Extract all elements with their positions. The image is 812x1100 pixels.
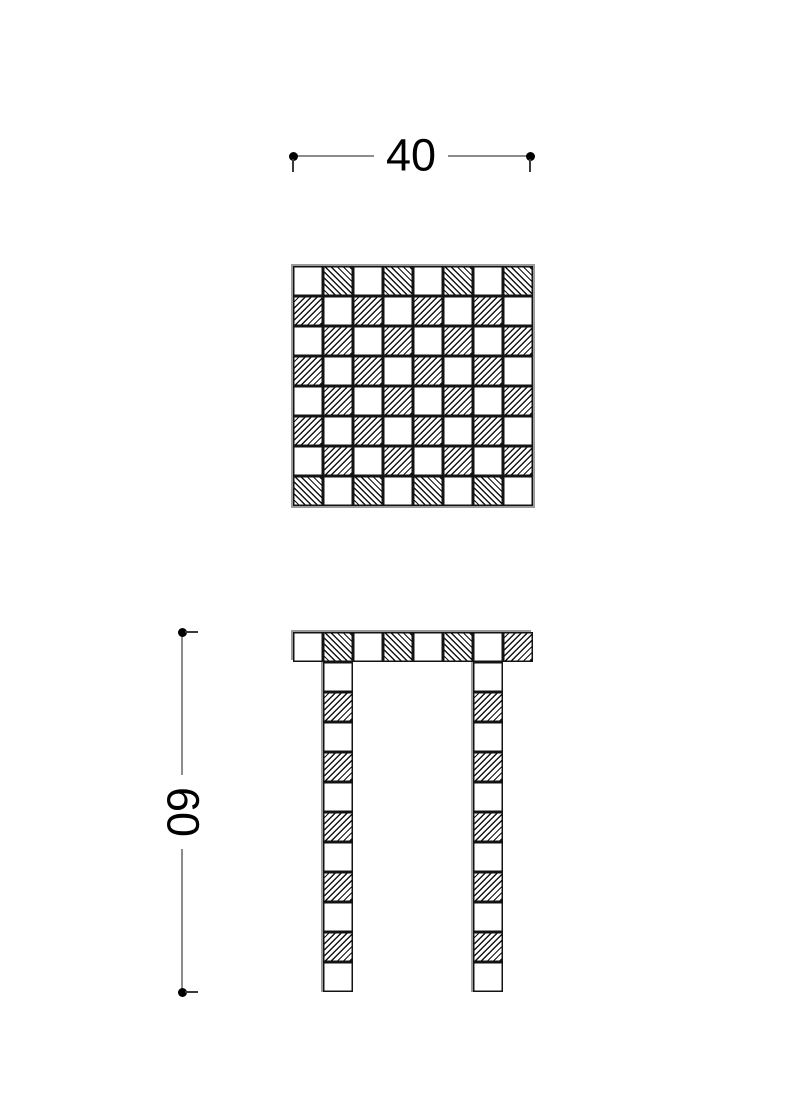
leg-cell [323,962,353,992]
top-view-cell [383,356,413,386]
top-view-cell [443,326,473,356]
top-view-cell [323,296,353,326]
top-view-cell [353,266,383,296]
top-view-cell [413,386,443,416]
top-view-cell [473,356,503,386]
top-view-cell [503,356,533,386]
top-view-cell [323,476,353,506]
top-view-cell [353,326,383,356]
top-view-cell [383,326,413,356]
top-view-cell [473,296,503,326]
top-view-cell [443,476,473,506]
top-view-cell [323,416,353,446]
top-view-cell [413,446,443,476]
seat-cell [323,632,353,662]
top-view-cell [293,356,323,386]
top-view-cell [443,296,473,326]
top-view-cell [443,386,473,416]
height-dimension-tick-top [185,631,198,633]
seat-cell [473,632,503,662]
top-view-cell [503,326,533,356]
width-dimension-tick-left [292,159,294,172]
leg-cell [473,662,503,692]
width-dimension-tick-right [529,159,531,172]
top-view-cell [503,266,533,296]
top-view-cell [503,416,533,446]
leg-cell [473,902,503,932]
leg-cell [323,692,353,722]
seat-cell [413,632,443,662]
leg-cell [323,932,353,962]
top-view-cell [353,446,383,476]
leg-cell [473,692,503,722]
top-view-cell [293,416,323,446]
height-dimension-tick-bottom [185,991,198,993]
leg-cell [323,902,353,932]
seat-cell [293,632,323,662]
top-view-cell [383,386,413,416]
leg-cell [323,842,353,872]
leg-cell [473,812,503,842]
top-view-cell [383,446,413,476]
top-view-cell [323,446,353,476]
seat-cell [353,632,383,662]
leg-cell [473,932,503,962]
leg-cell [473,872,503,902]
leg-cell [473,782,503,812]
leg-cell [323,662,353,692]
top-view-cell [323,266,353,296]
top-view-cell [383,416,413,446]
leg-cell [473,962,503,992]
top-view-cell [443,356,473,386]
top-view-cell [323,386,353,416]
top-view-cell [443,416,473,446]
seat-cell [383,632,413,662]
top-view-cell [293,476,323,506]
top-view-cell [383,266,413,296]
top-view-cell [473,266,503,296]
top-view-cell [353,386,383,416]
top-view-cell [443,446,473,476]
leg-cell [323,752,353,782]
top-view-cell [323,356,353,386]
top-view-cell [383,476,413,506]
seat-cell [443,632,473,662]
top-view-cell [293,386,323,416]
top-view-cell [413,326,443,356]
top-view-cell [473,326,503,356]
leg-cell [473,722,503,752]
top-view-cell [353,416,383,446]
top-view-cell [353,296,383,326]
top-view-cell [413,266,443,296]
top-view-cell [413,296,443,326]
leg-cell [473,842,503,872]
leg-cell [323,722,353,752]
top-view-cell [323,326,353,356]
top-view-cell [473,476,503,506]
top-view-cell [383,296,413,326]
seat-front-view-bar [293,632,533,662]
top-view-cell [473,416,503,446]
top-view-cell [443,266,473,296]
top-view-cell [503,476,533,506]
top-view-cell [353,356,383,386]
leg-cell [323,782,353,812]
right-leg [473,662,503,992]
top-view-cell [473,446,503,476]
top-view-cell [293,266,323,296]
top-view-cell [293,446,323,476]
technical-drawing-canvas: 40 60 [0,0,812,1100]
top-view-cell [353,476,383,506]
top-view-cell [293,326,323,356]
top-view-cell [413,356,443,386]
leg-cell [323,812,353,842]
seat-top-view-checkerboard [293,266,533,506]
top-view-cell [473,386,503,416]
leg-cell [473,752,503,782]
top-view-cell [413,416,443,446]
seat-cell [503,632,533,662]
width-dimension-label: 40 [374,133,448,180]
top-view-cell [503,296,533,326]
top-view-cell [413,476,443,506]
height-dimension-label: 60 [159,775,206,849]
top-view-cell [503,446,533,476]
top-view-cell [503,386,533,416]
left-leg [323,662,353,992]
leg-cell [323,872,353,902]
top-view-cell [293,296,323,326]
